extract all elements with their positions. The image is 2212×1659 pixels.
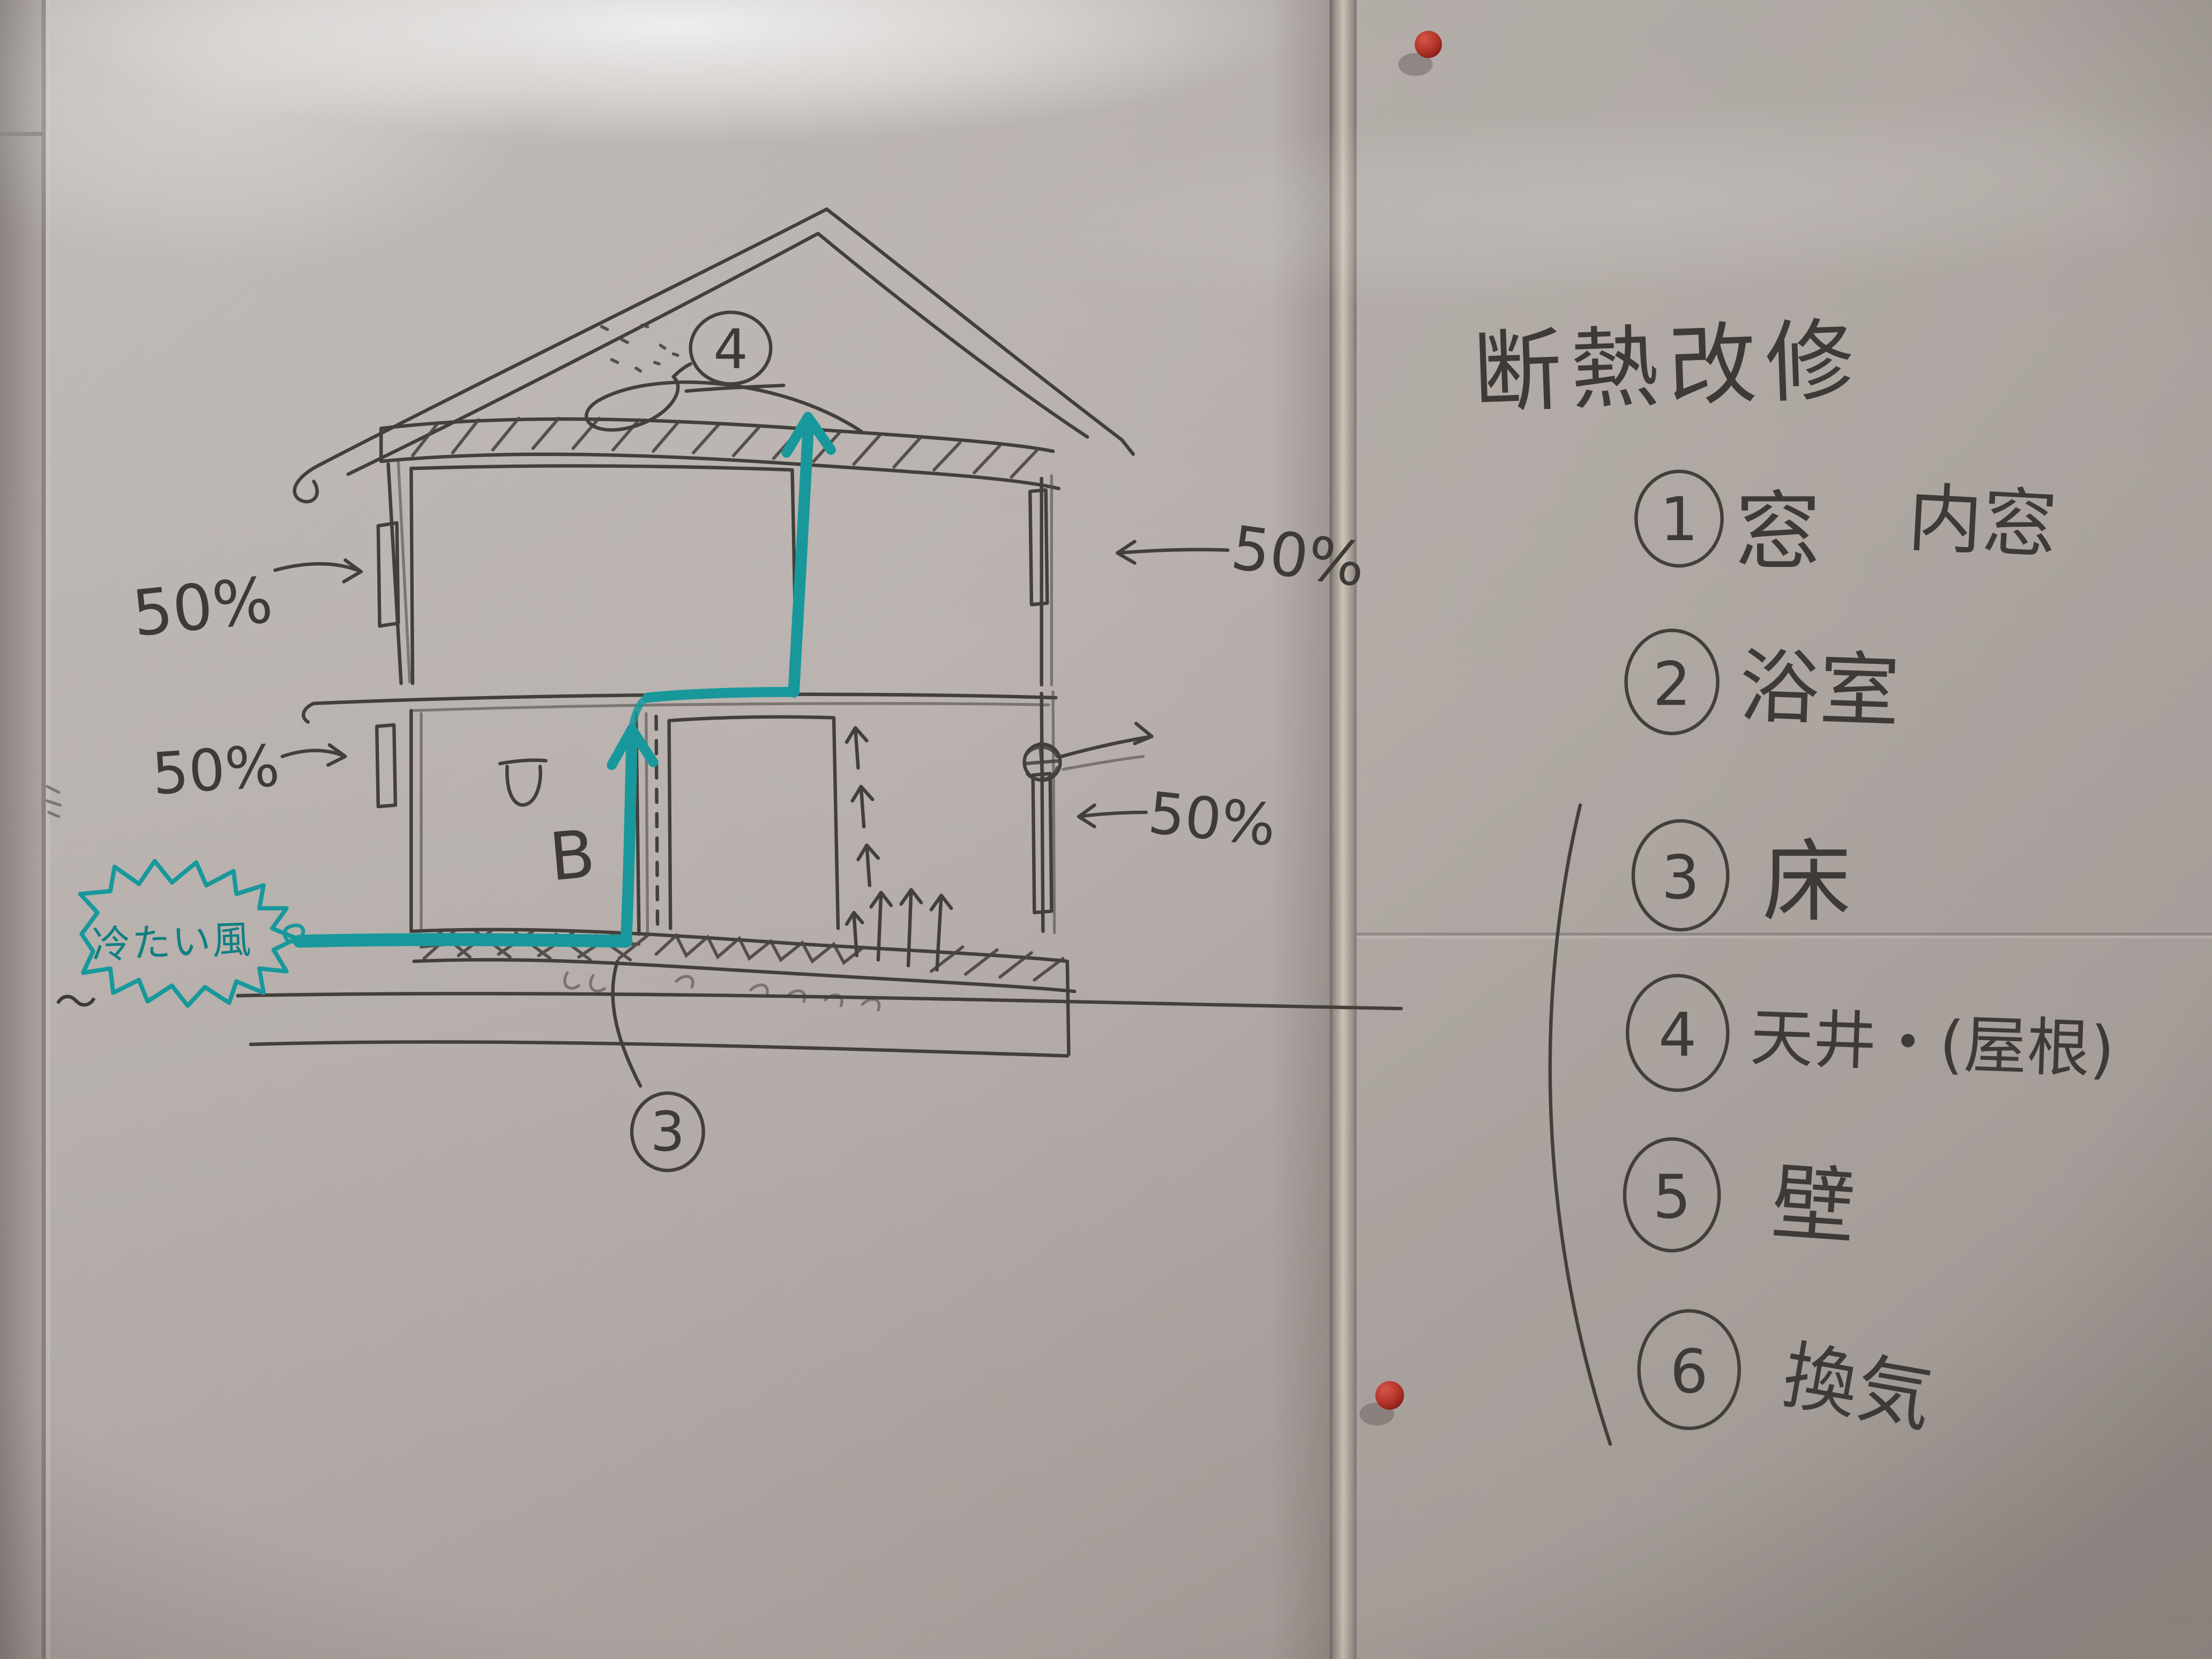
attic-number: 4 [713, 318, 748, 381]
item-1-extra-label: 内窓 [1906, 475, 2059, 569]
wall-1f-right-double [1053, 692, 1055, 932]
item-2-number: 2 [1653, 649, 1691, 719]
item-3-label: 床 [1762, 831, 1851, 934]
interior-wall-dashed [656, 716, 657, 931]
cold-wind-label: 冷たい風 [91, 917, 253, 968]
cold-air-jog [647, 692, 789, 698]
item-5-label: 壁 [1769, 1154, 1858, 1256]
red-magnet-pin-bottom [1376, 1381, 1404, 1409]
wall-1f-right [1042, 693, 1043, 931]
under-floor-number: 3 [651, 1100, 685, 1163]
whiteboard-photo: 50% 50% 50% 50% B 4 3 冷たい風 〜 断熱改修 1 窓 内窓… [0, 0, 2212, 1659]
cold-air-vertical-1 [626, 741, 632, 941]
item-1-label: 窓 [1735, 482, 1821, 582]
item-4-number: 4 [1658, 1000, 1697, 1070]
pct-label-mid-left: 50% [150, 733, 282, 808]
item-1-number: 1 [1660, 485, 1698, 555]
item-3-number: 3 [1661, 843, 1699, 913]
red-magnet-pin-top [1415, 31, 1442, 58]
stray-squiggle: 〜 [55, 977, 98, 1027]
ventilation-fan-icon [1025, 744, 1060, 781]
pct-label-top-left: 50% [129, 563, 276, 651]
room-label-b: B [547, 816, 599, 896]
item-4-label: 天井・(屋根) [1749, 1001, 2116, 1087]
item-6-number: 6 [1670, 1337, 1708, 1407]
pct-label-mid-right: 50% [1145, 780, 1279, 860]
list-title: 断熱改修 [1471, 309, 1864, 425]
item-5-number: 5 [1653, 1163, 1691, 1232]
cold-air-horizontal [300, 939, 626, 941]
item-2-label: 浴室 [1738, 640, 1901, 739]
